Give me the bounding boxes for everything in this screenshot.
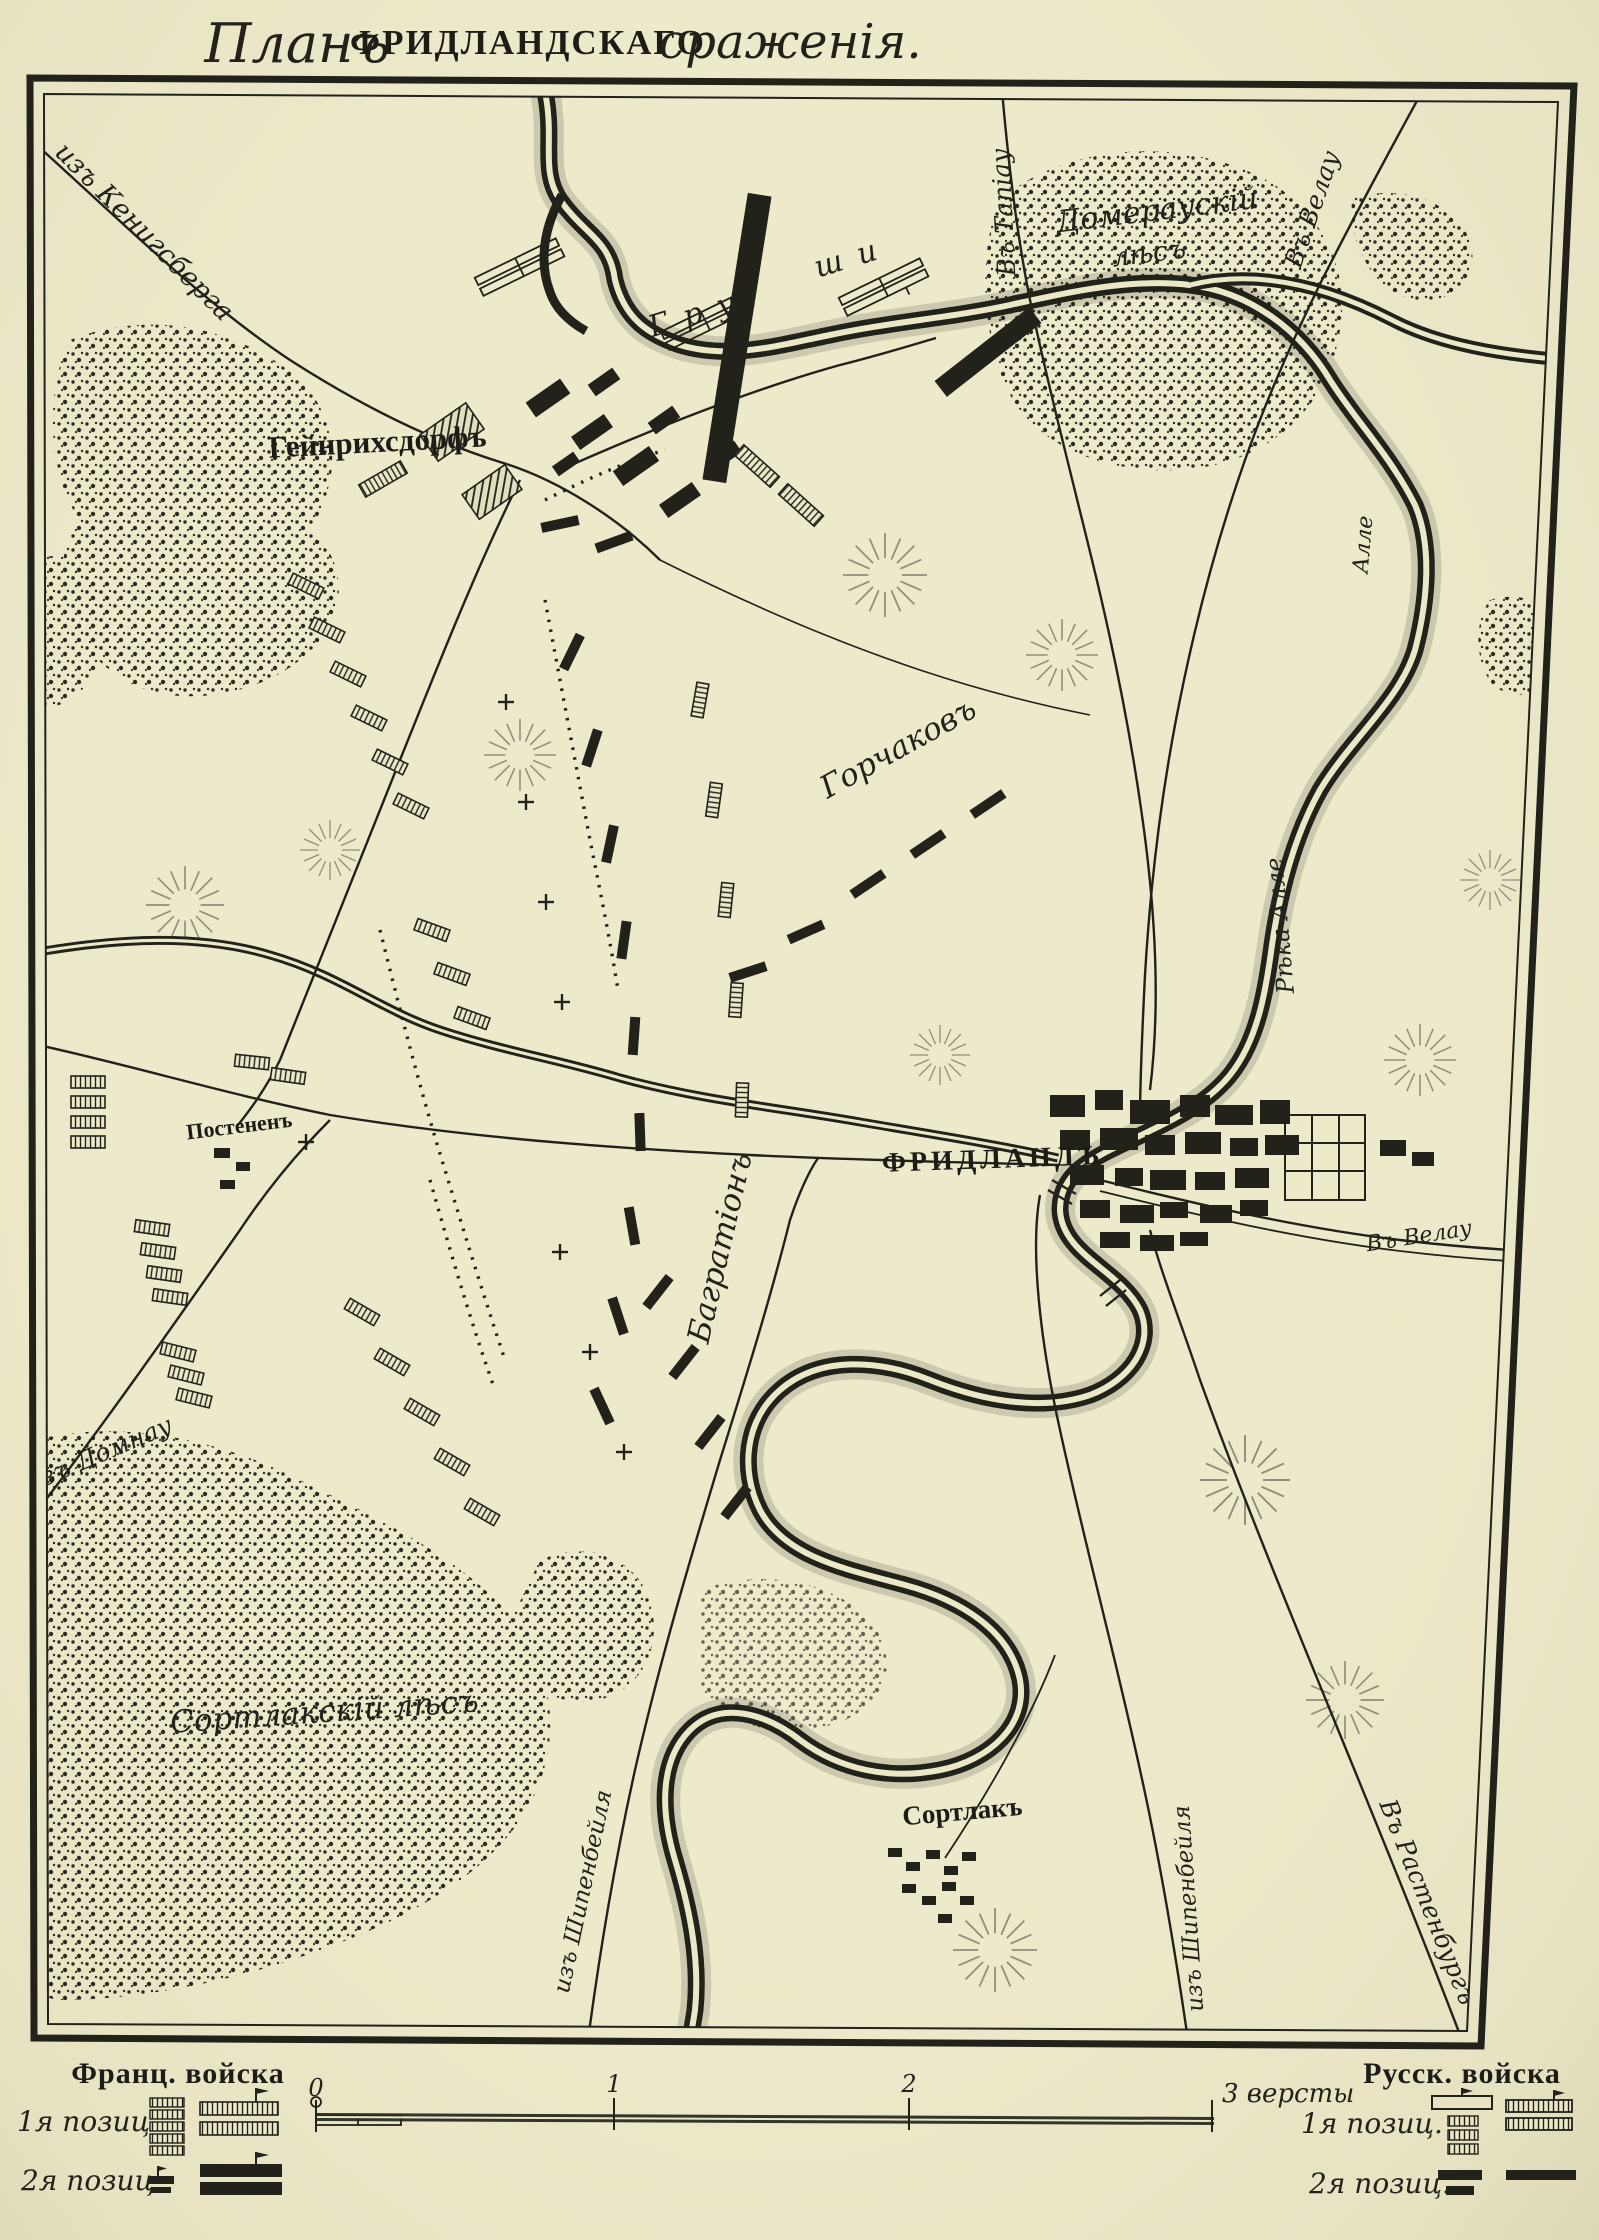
- forest-left-mid: [36, 556, 107, 707]
- scale-tick-1: 1: [606, 2070, 621, 2098]
- label-gorchakov: Горчаковъ: [813, 691, 982, 807]
- legend-french-pos1-infantry: [150, 2098, 184, 2155]
- russian-units-layer: [540, 193, 1041, 1520]
- legend-russian-pos1-line: [1506, 2090, 1572, 2130]
- scale-bar: 0 1 2 3 версты: [308, 2070, 1354, 2132]
- road-wehlau-right-2: [1100, 1191, 1545, 1263]
- legend-french-pos1-line: [200, 2088, 278, 2135]
- legend-french-pos2: 2я позиц.: [20, 2164, 163, 2197]
- forest-center-bottom: [513, 1551, 654, 1702]
- map-page: Планъ ФРИДЛАНДСКАГО сраженія.: [0, 0, 1599, 2240]
- scale-tick-2: 2: [900, 2070, 916, 2098]
- map-artwork: изъ Кенигсберга Гейнрихсдорфъ Гру ши Дом…: [21, 88, 1566, 2048]
- legend-french-pos1: 1я позиц.: [17, 2105, 159, 2138]
- artillery-layer: [298, 694, 632, 1460]
- label-to-wehlau-right: Въ Велау: [1363, 1216, 1474, 1258]
- village-sortlack: [888, 1848, 976, 1923]
- legend-french: Франц. войска 1я позиц. 2я позиц.: [17, 2057, 401, 2197]
- village-posthenen: [214, 1148, 250, 1189]
- scale-end-label: 3 версты: [1222, 2079, 1354, 2109]
- road-schippenbeil-right: [1036, 1195, 1188, 2040]
- legend-french-title: Франц. войска: [71, 2057, 284, 2090]
- legend-french-pos2-line: [200, 2152, 282, 2195]
- map-title: Планъ ФРИДЛАНДСКАГО сраженія.: [203, 12, 921, 75]
- label-from-koenigsberg: изъ Кенигсберга: [49, 137, 240, 328]
- label-bagration: Багратіонъ: [681, 1149, 760, 1347]
- legend-russian-pos2: 2я позиц.: [1308, 2167, 1451, 2200]
- label-to-tapiau: Въ Тапіау: [986, 147, 1022, 278]
- title-script-suffix: сраженія.: [658, 14, 921, 70]
- legend-russian-pos1: 1я позиц.: [1301, 2107, 1443, 2140]
- label-from-schippenbeil-left: изъ Шипенбейля: [549, 1788, 617, 1996]
- forest-top-right-sliver: [1352, 193, 1473, 300]
- road-field-lane: [660, 560, 1090, 715]
- label-sortlack: Сортлакъ: [901, 1791, 1024, 1831]
- legend-russian-pos2-symbols: [1438, 2170, 1576, 2195]
- label-from-schippenbeil-right: изъ Шипенбейля: [1169, 1804, 1209, 2012]
- legend-russian-title: Русск. войска: [1363, 2057, 1561, 2090]
- label-to-rastenburg: Въ Растенбургъ: [1373, 1794, 1482, 2009]
- scale-tick-0: 0: [308, 2074, 323, 2102]
- friedland-map-svg: Планъ ФРИДЛАНДСКАГО сраженія.: [0, 0, 1599, 2240]
- title-main: ФРИДЛАНДСКАГО: [350, 23, 706, 62]
- label-alle-upper: Алле: [1348, 515, 1378, 577]
- label-posthenen: Постененъ: [185, 1107, 294, 1145]
